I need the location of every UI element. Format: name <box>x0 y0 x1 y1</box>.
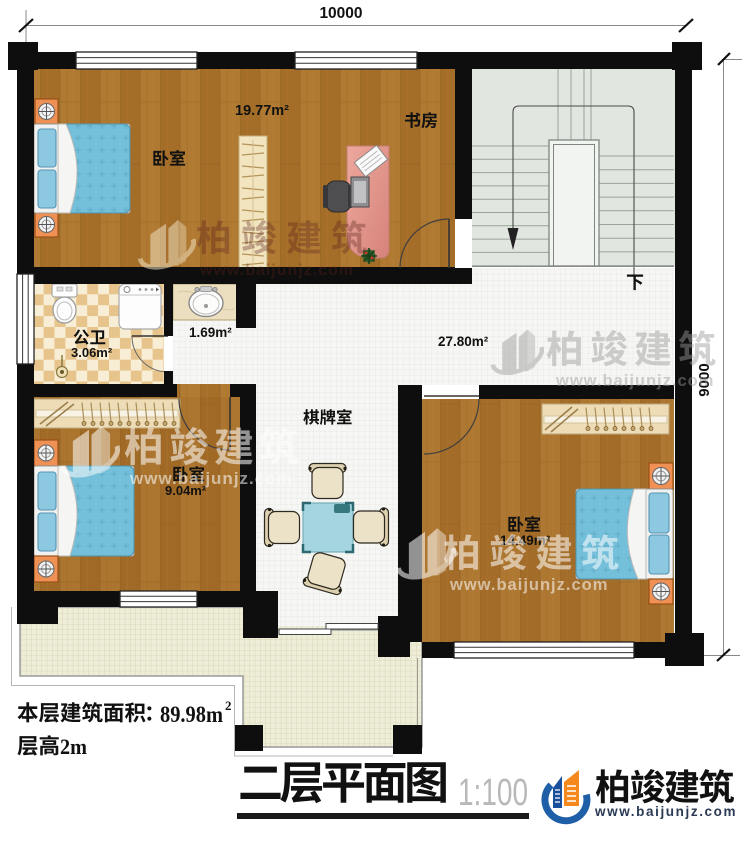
svg-text:2: 2 <box>225 698 232 713</box>
svg-text:www.baijunjz.com: www.baijunjz.com <box>594 804 737 819</box>
svg-text:1.69m²: 1.69m² <box>189 325 232 340</box>
svg-text:1:100: 1:100 <box>458 772 528 814</box>
svg-text:3.06m²: 3.06m² <box>71 345 113 360</box>
svg-text:10000: 10000 <box>319 5 362 22</box>
svg-text:www.baijunjz.com: www.baijunjz.com <box>449 576 608 594</box>
svg-text:www.baijunjz.com: www.baijunjz.com <box>129 469 293 488</box>
svg-text:19.77m²: 19.77m² <box>235 103 289 119</box>
svg-text:2m: 2m <box>60 734 87 759</box>
svg-text:27.80m²: 27.80m² <box>438 334 489 349</box>
svg-text:89.98m: 89.98m <box>160 702 223 727</box>
svg-text:www.baijunjz.com: www.baijunjz.com <box>199 262 354 279</box>
svg-text:www.baijunjz.com: www.baijunjz.com <box>555 372 714 390</box>
